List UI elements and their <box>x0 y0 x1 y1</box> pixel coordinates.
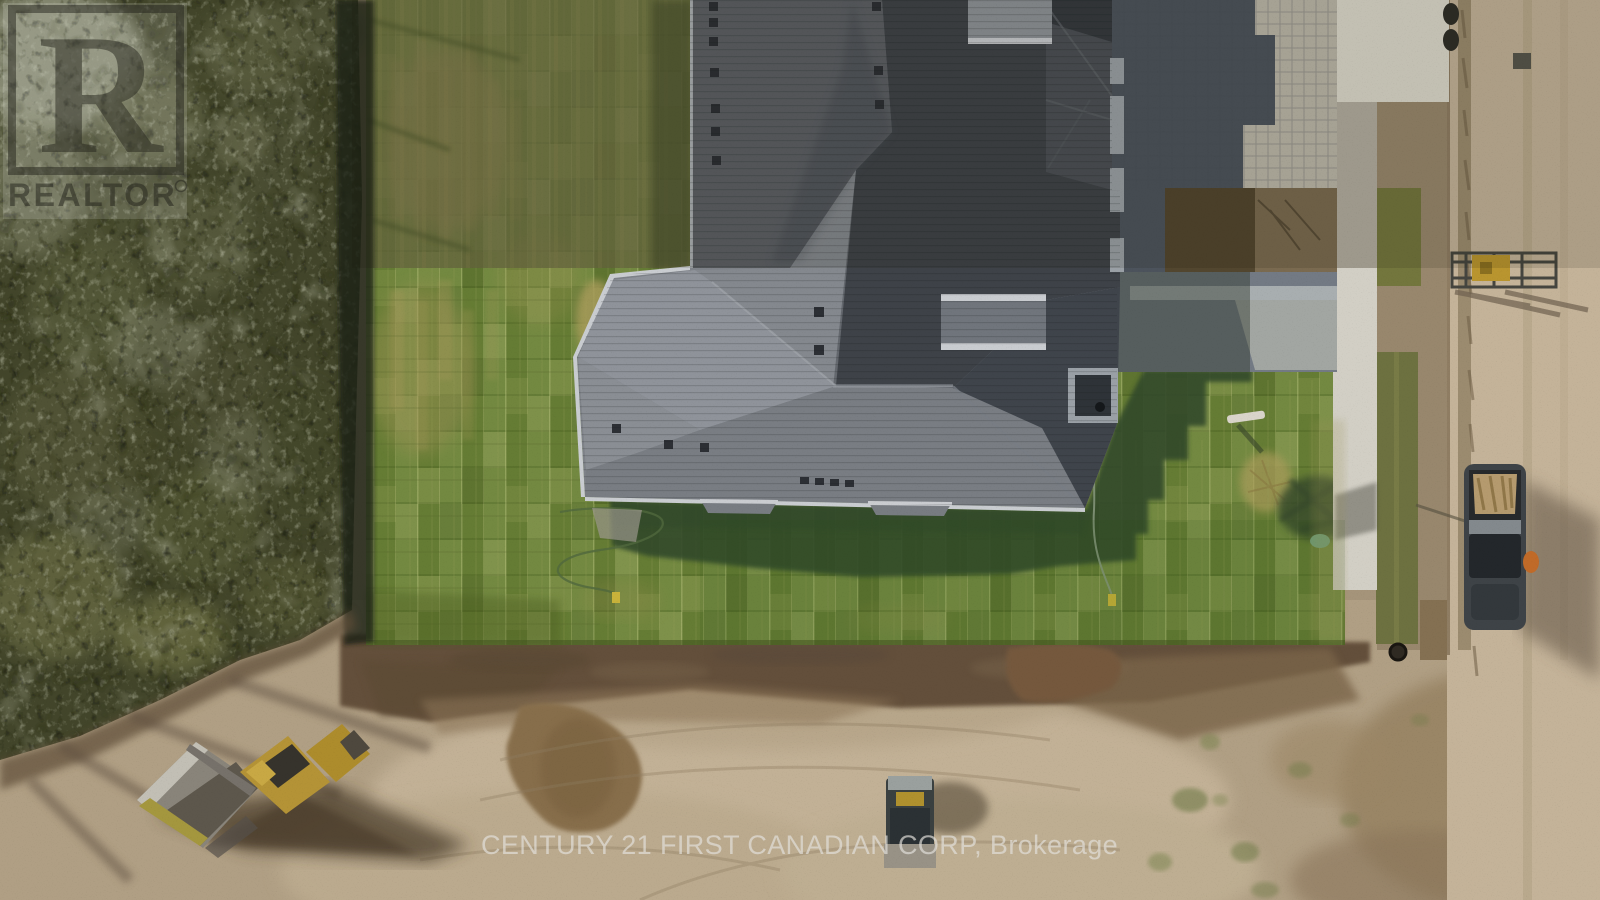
svg-text:R: R <box>38 0 164 190</box>
svg-text:CENTURY 21 FIRST CANADIAN CORP: CENTURY 21 FIRST CANADIAN CORP, Brokerag… <box>481 830 1118 860</box>
svg-text:REALTOR: REALTOR <box>8 177 177 213</box>
